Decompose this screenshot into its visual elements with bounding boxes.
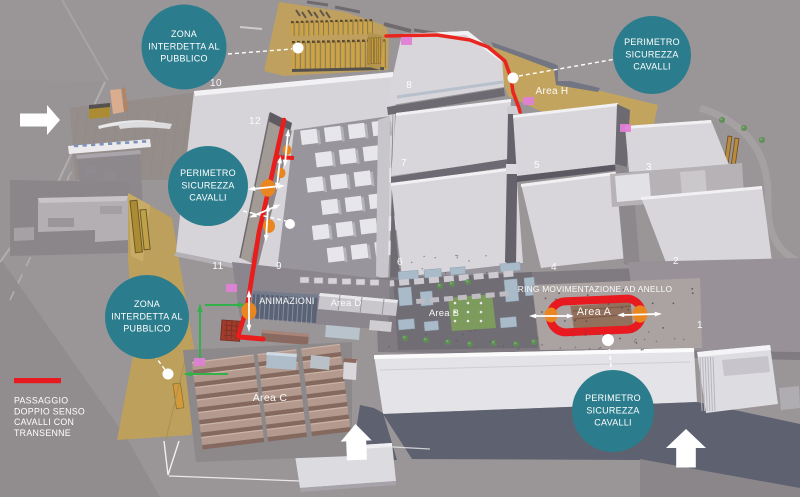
svg-text:PUBBLICO: PUBBLICO xyxy=(123,324,171,334)
svg-text:TRANSENNE: TRANSENNE xyxy=(14,428,71,438)
svg-text:INTERDETTA AL: INTERDETTA AL xyxy=(111,311,183,321)
svg-text:INTERDETTA AL: INTERDETTA AL xyxy=(148,41,220,51)
svg-text:SICUREZZA: SICUREZZA xyxy=(181,180,234,190)
svg-text:4: 4 xyxy=(551,262,557,273)
svg-text:Area B: Area B xyxy=(429,308,459,319)
svg-text:Area H: Area H xyxy=(536,86,569,97)
svg-text:ANIMAZIONI: ANIMAZIONI xyxy=(259,296,315,306)
svg-text:ZONA: ZONA xyxy=(171,29,197,39)
svg-text:Area C: Area C xyxy=(253,392,288,404)
svg-text:5: 5 xyxy=(534,160,540,171)
svg-text:2: 2 xyxy=(673,256,679,267)
svg-text:PERIMETRO: PERIMETRO xyxy=(180,168,236,178)
svg-text:11: 11 xyxy=(212,261,223,272)
svg-text:8: 8 xyxy=(406,80,412,91)
svg-text:DOPPIO SENSO: DOPPIO SENSO xyxy=(14,406,85,416)
svg-text:CAVALLI: CAVALLI xyxy=(633,62,670,72)
svg-text:PUBBLICO: PUBBLICO xyxy=(160,54,208,64)
svg-text:SICUREZZA: SICUREZZA xyxy=(586,405,639,415)
svg-text:3: 3 xyxy=(646,162,652,173)
svg-text:RING MOVIMENTAZIONE AD ANELLO: RING MOVIMENTAZIONE AD ANELLO xyxy=(518,284,673,294)
svg-text:1: 1 xyxy=(697,320,703,331)
svg-text:PASSAGGIO: PASSAGGIO xyxy=(14,396,68,406)
svg-text:10: 10 xyxy=(210,78,222,89)
svg-text:SICUREZZA: SICUREZZA xyxy=(625,49,678,59)
svg-text:PERIMETRO: PERIMETRO xyxy=(585,393,641,403)
svg-text:9: 9 xyxy=(276,261,282,272)
svg-text:7: 7 xyxy=(401,158,407,169)
svg-text:CAVALLI: CAVALLI xyxy=(594,418,631,428)
svg-text:12: 12 xyxy=(249,116,261,127)
svg-text:Area A: Area A xyxy=(577,306,612,318)
svg-text:Area D: Area D xyxy=(331,298,362,309)
svg-text:CAVALLI: CAVALLI xyxy=(189,193,226,203)
svg-text:ZONA: ZONA xyxy=(134,299,160,309)
svg-text:PERIMETRO: PERIMETRO xyxy=(624,37,680,47)
svg-text:CAVALLI CON: CAVALLI CON xyxy=(14,417,74,427)
svg-text:6: 6 xyxy=(397,257,403,268)
